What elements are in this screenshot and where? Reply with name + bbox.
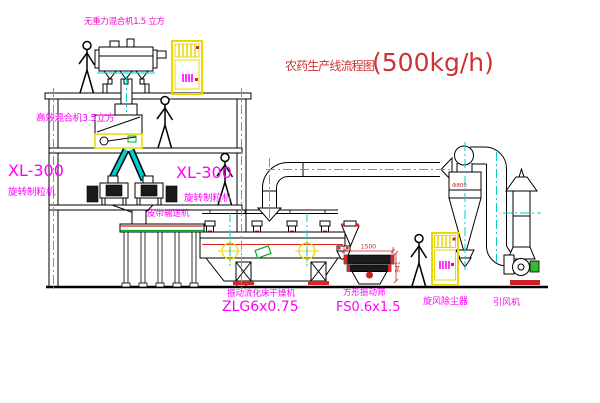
label-granulator-left-model: XL-300 [8, 161, 64, 180]
label-cyclone: 旋风除尘器 [423, 295, 468, 307]
svg-text:941: 941 [395, 261, 402, 273]
label-granulator-left-name: 旋转制粒机 [8, 186, 56, 198]
label-mid-mixer: 高效混合机3.5立方 [36, 112, 115, 124]
svg-text:1500: 1500 [361, 244, 376, 251]
label-granulator-right-model: XL-300 [176, 163, 232, 182]
process-flow-diagram: Φ800 [0, 0, 600, 403]
person-icon [157, 97, 173, 149]
cabinet-buttons-icon [440, 261, 449, 269]
label-screen-model: FS0.6x1.5 [336, 300, 401, 315]
exhaust-stack [506, 169, 537, 259]
dryer-foot-right [308, 262, 329, 285]
indicator-light-icon [196, 46, 199, 49]
indicator-light-icon [453, 238, 456, 241]
label-belt-conveyor: 皮带输送机 [147, 208, 190, 219]
person-icon [411, 235, 427, 287]
control-cabinet-upper [172, 41, 202, 94]
fluid-bed-dryer [200, 210, 350, 285]
screen-motor [366, 272, 373, 279]
screen-height-dimension: 941 [394, 251, 402, 283]
label-fan: 引风机 [493, 296, 520, 308]
dryer-foot-left [233, 262, 254, 285]
label-dryer-name: 振动流化床干燥机 [227, 288, 296, 299]
cabinet-buttons-icon [183, 74, 192, 82]
high-efficiency-mixer [95, 104, 142, 148]
label-top-mixer: 无重力混合机1.5 立方 [84, 16, 165, 27]
page-title-capacity: (500kg/h) [372, 48, 494, 77]
exhaust-duct [258, 158, 452, 221]
fan-base [510, 280, 540, 285]
label-granulator-right-name: 旋转制粒机 [184, 192, 232, 204]
page-title: 农药生产线流程图 [285, 58, 374, 73]
fan-motor [530, 261, 539, 272]
cad-drawing-canvas: Φ800 [0, 0, 600, 403]
belt-conveyor [120, 224, 204, 287]
label-screen-name: 方形振动筛 [343, 287, 386, 298]
label-dryer-model: ZLG6x0.75 [222, 299, 299, 315]
granulator-left [87, 176, 128, 205]
person-icon [79, 42, 95, 94]
control-cabinet-lower [432, 233, 458, 285]
air-inlet-stubs [205, 221, 330, 233]
vibrating-screen: 1500 941 [341, 221, 402, 284]
